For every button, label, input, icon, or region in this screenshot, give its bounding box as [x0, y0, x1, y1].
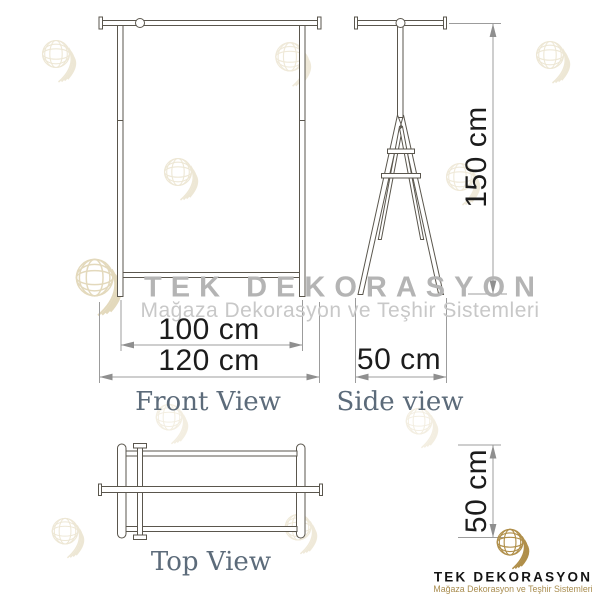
view-label-front: Front View [135, 387, 281, 417]
hanger-hook-circle [396, 19, 405, 28]
watermark-globe-icon [43, 41, 76, 83]
technical-drawing-canvas: TEK DEKORASYON Mağaza Dekorasyon ve Teşh… [0, 0, 600, 600]
brand-globe-icon [497, 529, 528, 568]
brand-logo-subtitle: Mağaza Dekorasyon ve Teşhir Sistemleri [433, 584, 592, 594]
view-label-top: Top View [151, 547, 271, 577]
dimension-label-front-total-width: 120 cm [158, 344, 259, 378]
dimension-label-top-depth: 50 cm [460, 449, 494, 533]
watermark-globe-icon [165, 159, 198, 201]
watermark-globe-icon [52, 518, 83, 557]
brand-logo-title: TEK DEKORASYON [434, 570, 592, 585]
hanger-hook-circle [136, 19, 145, 28]
front-view-drawing [99, 17, 321, 297]
view-label-side: Side view [336, 387, 463, 417]
side-view-drawing [355, 17, 447, 295]
dimension-label-front-rail-width: 100 cm [158, 313, 259, 347]
watermark-globe-icon [76, 259, 120, 315]
dimension-label-side-height: 150 cm [460, 106, 494, 207]
top-view-drawing [99, 444, 323, 540]
dimension-label-side-depth: 50 cm [357, 343, 441, 377]
watermark-globe-icon [537, 42, 570, 84]
